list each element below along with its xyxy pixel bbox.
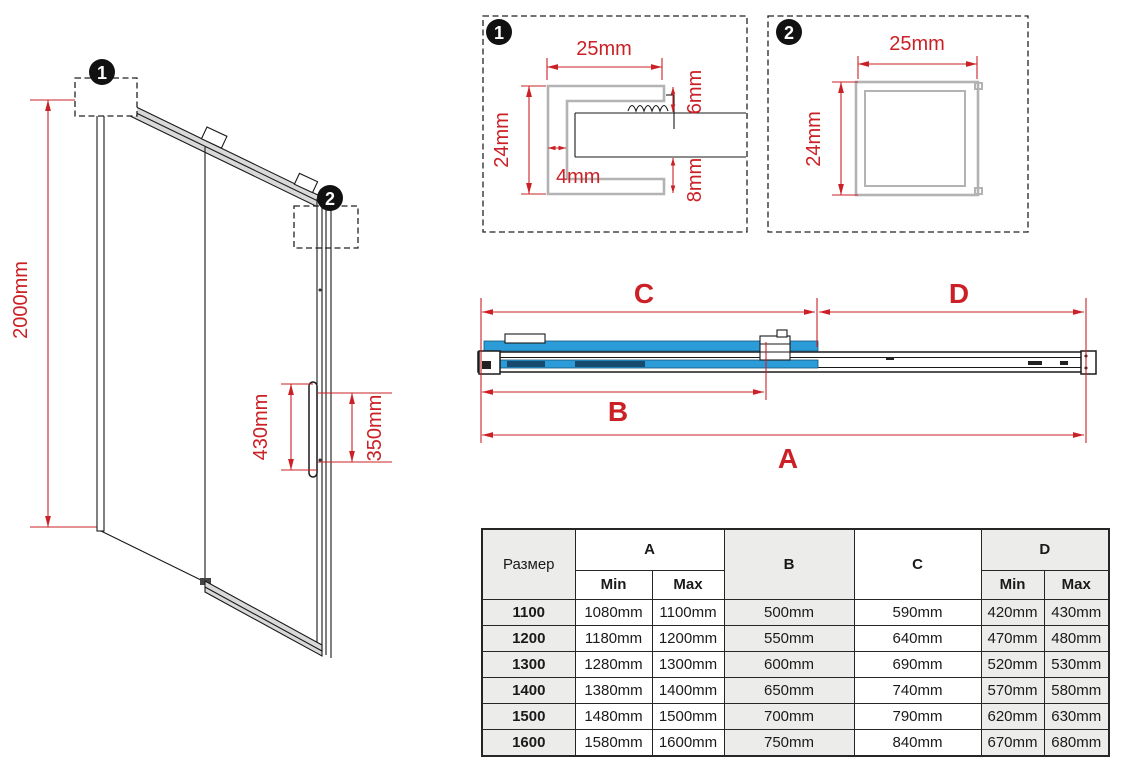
detail-1-bottomgap-label: 8mm xyxy=(684,158,706,202)
detail-1-topgap-label: 6mm xyxy=(684,70,706,114)
detail-2-box: 2 25mm 24mm xyxy=(768,16,1028,232)
size-cell: 1200 xyxy=(482,625,575,651)
d-min-cell: 520mm xyxy=(981,651,1044,677)
a-max-cell: 1600mm xyxy=(652,729,724,756)
height-dim-label: 2000mm xyxy=(10,261,32,339)
sliding-door xyxy=(317,199,331,658)
glass-panel-lines xyxy=(575,113,746,157)
size-cell: 1100 xyxy=(482,599,575,625)
d-max-cell: 530mm xyxy=(1044,651,1109,677)
plan-dim-b-label: B xyxy=(608,396,628,427)
c-cell: 740mm xyxy=(854,677,981,703)
d-max-cell: 430mm xyxy=(1044,599,1109,625)
b-cell: 700mm xyxy=(724,703,854,729)
plan-dim-c-label: C xyxy=(634,278,654,309)
b-cell: 600mm xyxy=(724,651,854,677)
a-max-cell: 1200mm xyxy=(652,625,724,651)
b-cell: 550mm xyxy=(724,625,854,651)
marker-1-number: 1 xyxy=(97,63,107,83)
c-cell: 590mm xyxy=(854,599,981,625)
detail-2-width-label: 25mm xyxy=(889,33,945,55)
table-row: 1100 1080mm 1100mm 500mm 590mm 420mm 430… xyxy=(482,599,1109,625)
a-min-cell: 1180mm xyxy=(575,625,652,651)
plan-dim-d-label: D xyxy=(949,278,969,309)
detail-2-dimensions xyxy=(832,56,977,195)
d-min-cell: 420mm xyxy=(981,599,1044,625)
a-min-cell: 1380mm xyxy=(575,677,652,703)
a-max-cell: 1100mm xyxy=(652,599,724,625)
handle-holes-label: 350mm xyxy=(364,395,386,462)
detail-1-height-label: 24mm xyxy=(491,112,513,168)
roller-bracket-right xyxy=(760,330,790,360)
d-min-header: Min xyxy=(981,570,1044,599)
handle-length-label: 430mm xyxy=(250,394,272,461)
wall-profile-left xyxy=(479,351,500,374)
col-c-header: C xyxy=(854,529,981,599)
a-max-cell: 1400mm xyxy=(652,677,724,703)
col-b-header: B xyxy=(724,529,854,599)
size-table: Размер A B C D Min Max Min Max 1100 1080… xyxy=(481,528,1110,757)
wall-profile-right xyxy=(1081,351,1096,374)
detail-1-wall-label: 4mm xyxy=(556,166,600,188)
a-min-cell: 1480mm xyxy=(575,703,652,729)
d-max-header: Max xyxy=(1044,570,1109,599)
size-cell: 1600 xyxy=(482,729,575,756)
iso-door-view: 2000mm xyxy=(10,59,392,658)
height-dimension xyxy=(30,100,99,527)
table-row: 1600 1580mm 1600mm 750mm 840mm 670mm 680… xyxy=(482,729,1109,756)
d-min-cell: 470mm xyxy=(981,625,1044,651)
table-row: 1400 1380mm 1400mm 650mm 740mm 570mm 580… xyxy=(482,677,1109,703)
a-min-cell: 1280mm xyxy=(575,651,652,677)
col-a-header: A xyxy=(575,529,724,570)
detail-1-number: 1 xyxy=(494,23,504,43)
detail-2-number: 2 xyxy=(784,23,794,43)
bottom-rail xyxy=(205,581,322,656)
d-max-cell: 680mm xyxy=(1044,729,1109,756)
table-row: 1300 1280mm 1300mm 600mm 690mm 520mm 530… xyxy=(482,651,1109,677)
a-max-cell: 1300mm xyxy=(652,651,724,677)
a-min-cell: 1580mm xyxy=(575,729,652,756)
col-d-header: D xyxy=(981,529,1109,570)
marker-1: 1 xyxy=(75,59,137,116)
d-max-cell: 580mm xyxy=(1044,677,1109,703)
c-cell: 790mm xyxy=(854,703,981,729)
tube-profile-outer xyxy=(856,82,978,195)
c-cell: 640mm xyxy=(854,625,981,651)
b-cell: 650mm xyxy=(724,677,854,703)
marker-2-number: 2 xyxy=(325,189,335,209)
plan-dim-a-label: A xyxy=(778,443,798,474)
a-min-cell: 1080mm xyxy=(575,599,652,625)
c-cell: 690mm xyxy=(854,651,981,677)
tube-profile-inner xyxy=(865,91,965,186)
detail-2-height-label: 24mm xyxy=(803,111,825,167)
a-max-cell: 1500mm xyxy=(652,703,724,729)
a-min-header: Min xyxy=(575,570,652,599)
d-min-cell: 620mm xyxy=(981,703,1044,729)
size-cell: 1500 xyxy=(482,703,575,729)
detail-1-width-label: 25mm xyxy=(576,38,632,60)
d-max-cell: 630mm xyxy=(1044,703,1109,729)
b-cell: 750mm xyxy=(724,729,854,756)
d-min-cell: 570mm xyxy=(981,677,1044,703)
size-cell: 1300 xyxy=(482,651,575,677)
d-max-cell: 480mm xyxy=(1044,625,1109,651)
d-min-cell: 670mm xyxy=(981,729,1044,756)
b-cell: 500mm xyxy=(724,599,854,625)
roller-bracket-left xyxy=(505,334,545,343)
fixed-panel xyxy=(97,93,211,585)
c-cell: 840mm xyxy=(854,729,981,756)
table-row: 1200 1180mm 1200mm 550mm 640mm 470mm 480… xyxy=(482,625,1109,651)
size-col-header: Размер xyxy=(482,529,575,599)
shower-door-spec-sheet: 2000mm xyxy=(0,0,1125,776)
size-cell: 1400 xyxy=(482,677,575,703)
table-row: 1500 1480mm 1500mm 700mm 790mm 620mm 630… xyxy=(482,703,1109,729)
plan-view: C D B A xyxy=(478,278,1096,474)
a-max-header: Max xyxy=(652,570,724,599)
door-handle xyxy=(309,382,317,477)
detail-1-box: 1 25mm 24mm 6mm 8mm xyxy=(483,16,747,232)
